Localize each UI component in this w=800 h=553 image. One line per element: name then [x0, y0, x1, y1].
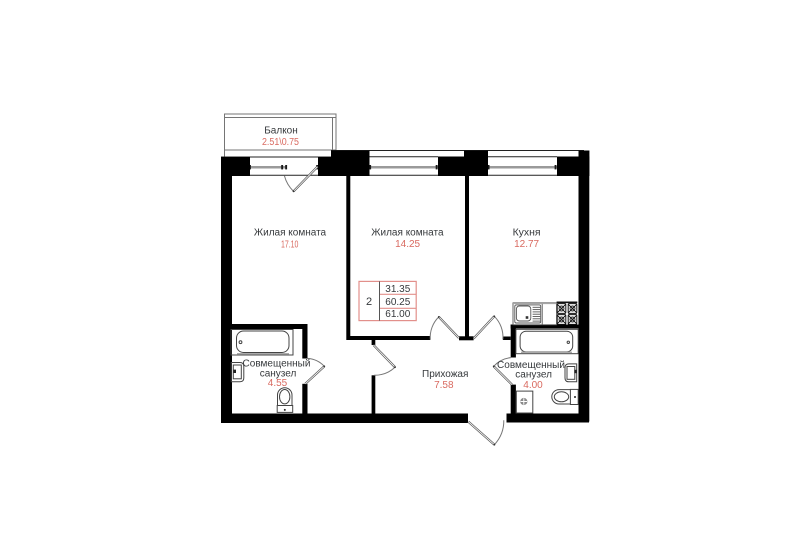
- svg-text:61.00: 61.00: [385, 309, 410, 320]
- svg-text:Жилая комната: Жилая комната: [371, 228, 444, 239]
- svg-text:14.25: 14.25: [395, 239, 420, 250]
- svg-text:2.51\0.75: 2.51\0.75: [262, 137, 299, 148]
- svg-text:7.58: 7.58: [434, 380, 454, 391]
- svg-text:31.35: 31.35: [385, 284, 410, 295]
- svg-text:17.10: 17.10: [281, 240, 299, 251]
- svg-text:Прихожая: Прихожая: [422, 369, 468, 380]
- svg-text:Жилая комната: Жилая комната: [254, 228, 327, 239]
- svg-text:60.25: 60.25: [385, 297, 410, 308]
- svg-text:Балкон: Балкон: [264, 126, 298, 137]
- svg-text:12.77: 12.77: [514, 239, 539, 250]
- svg-text:Кухня: Кухня: [513, 228, 541, 239]
- svg-text:4.00: 4.00: [523, 380, 543, 391]
- svg-text:2: 2: [366, 296, 372, 308]
- svg-text:4.55: 4.55: [268, 378, 288, 389]
